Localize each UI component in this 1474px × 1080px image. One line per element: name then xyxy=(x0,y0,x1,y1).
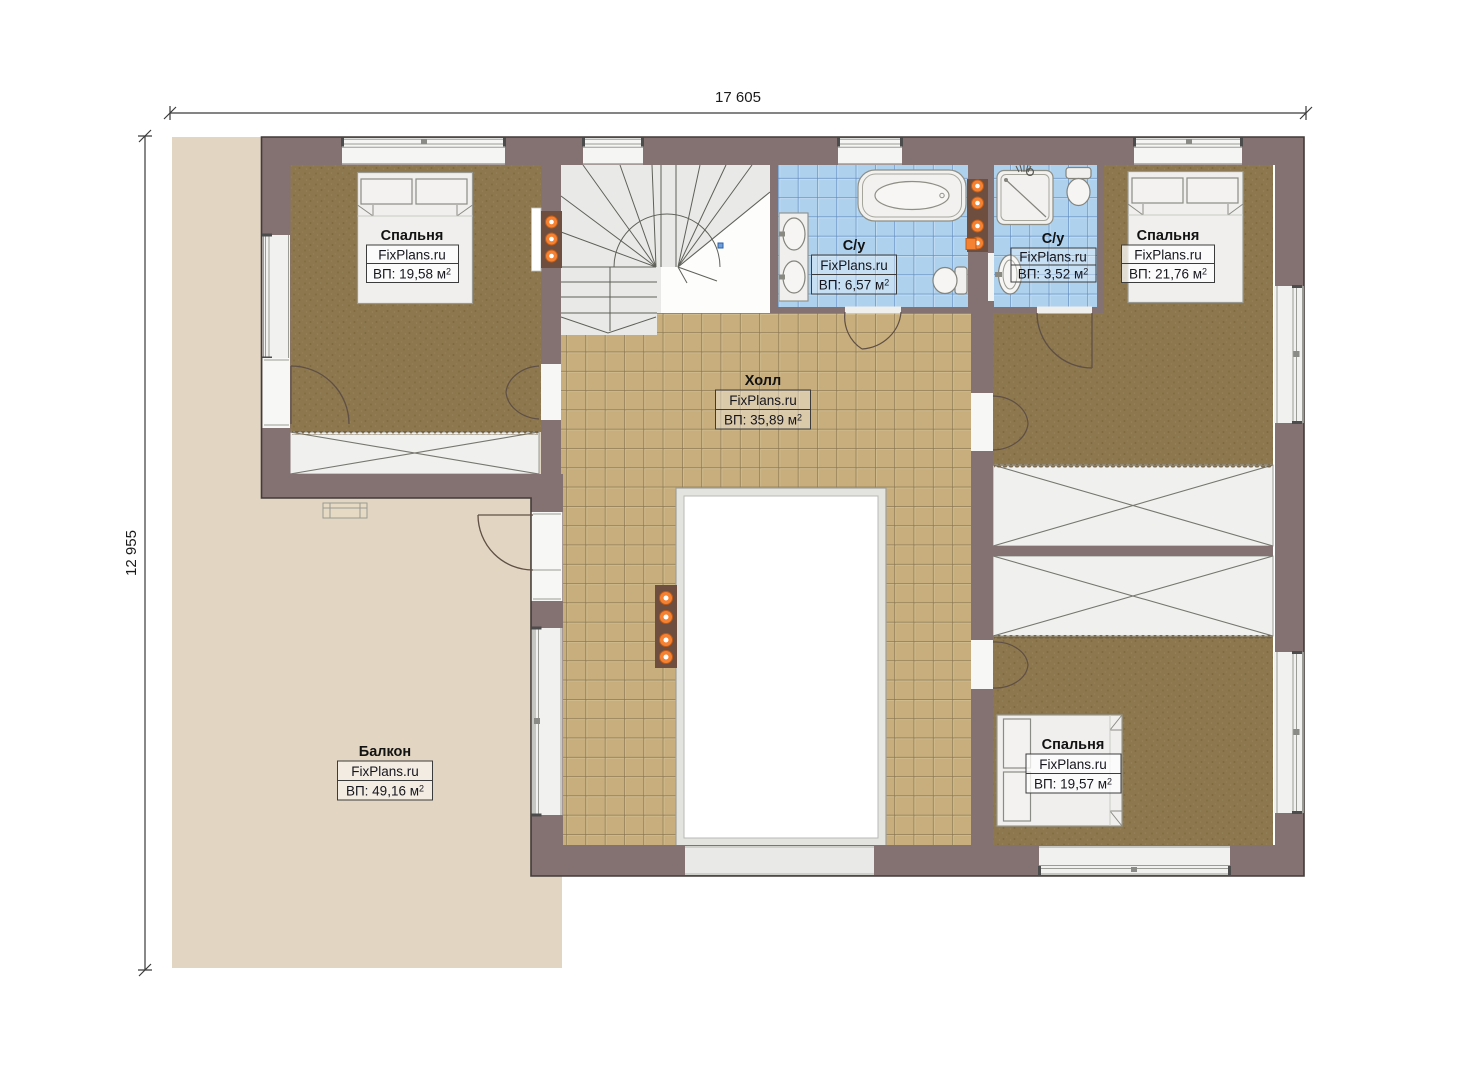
svg-text:ВП: 19,57 м2: ВП: 19,57 м2 xyxy=(1034,777,1112,792)
svg-text:С/у: С/у xyxy=(1042,231,1065,247)
svg-text:С/у: С/у xyxy=(843,238,866,254)
svg-text:FixPlans.ru: FixPlans.ru xyxy=(351,764,419,779)
svg-text:ВП: 49,16 м2: ВП: 49,16 м2 xyxy=(346,784,424,799)
svg-text:FixPlans.ru: FixPlans.ru xyxy=(729,393,797,408)
svg-text:17 605: 17 605 xyxy=(715,89,761,106)
svg-text:Балкон: Балкон xyxy=(359,744,411,760)
svg-text:ВП: 6,57 м2: ВП: 6,57 м2 xyxy=(819,278,890,293)
svg-text:12 955: 12 955 xyxy=(123,530,140,576)
svg-text:Спальня: Спальня xyxy=(381,228,444,244)
svg-text:Спальня: Спальня xyxy=(1042,737,1105,753)
svg-text:FixPlans.ru: FixPlans.ru xyxy=(1019,250,1087,265)
svg-text:Холл: Холл xyxy=(745,373,781,389)
svg-text:FixPlans.ru: FixPlans.ru xyxy=(820,258,888,273)
svg-text:FixPlans.ru: FixPlans.ru xyxy=(1039,757,1107,772)
svg-text:ВП: 35,89 м2: ВП: 35,89 м2 xyxy=(724,413,802,428)
svg-text:ВП: 19,58 м2: ВП: 19,58 м2 xyxy=(373,267,451,282)
svg-text:FixPlans.ru: FixPlans.ru xyxy=(378,248,446,263)
svg-text:Спальня: Спальня xyxy=(1137,228,1200,244)
svg-text:ВП: 3,52 м2: ВП: 3,52 м2 xyxy=(1018,267,1089,282)
svg-text:FixPlans.ru: FixPlans.ru xyxy=(1134,248,1202,263)
svg-text:ВП: 21,76 м2: ВП: 21,76 м2 xyxy=(1129,267,1207,282)
